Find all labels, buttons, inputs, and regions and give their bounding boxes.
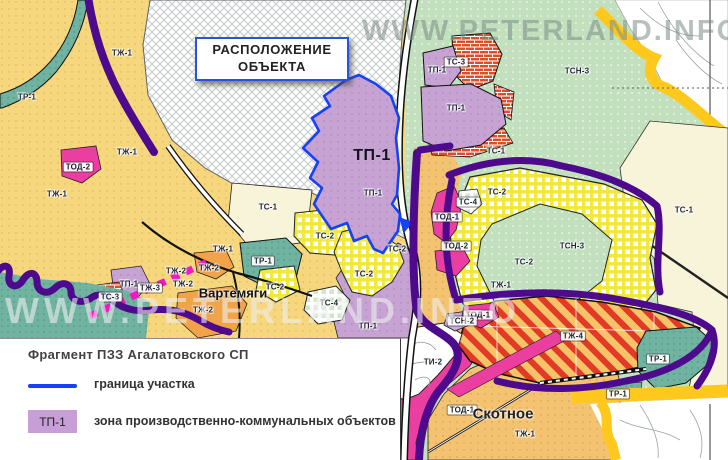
zone-label: ТЖ-1 <box>112 49 132 58</box>
place-label-vartemyagi: Вартемяги <box>199 286 267 301</box>
zone-label: ТЖ-4 <box>561 332 585 341</box>
zone-label: ТР-1 <box>647 355 669 364</box>
zone-label: ТС-3 <box>445 58 468 67</box>
zone-label: ТОД-1 <box>433 213 462 222</box>
zone-label: ТС-3 <box>99 293 122 302</box>
zone-label: ТР-1 <box>607 390 629 399</box>
zone-label: ТЖ-1 <box>515 430 535 439</box>
zone-label: ТС-1 <box>487 147 506 156</box>
zone-label: ТС-4 <box>457 198 480 207</box>
callout-line2: ОБЪЕКТА <box>238 59 306 76</box>
callout-object-location: РАСПОЛОЖЕНИЕ ОБЪЕКТА <box>195 37 349 81</box>
zone-label: ТП-1 <box>447 104 466 113</box>
zone-label: ТП-1 <box>359 322 378 331</box>
zone-label: ТЖ-1 <box>117 148 137 157</box>
zone-label: ТС-1 <box>259 203 278 212</box>
boundary-line-swatch <box>28 384 77 388</box>
zone-label: ТС-2 <box>266 283 285 292</box>
zone-label: ТС-2 <box>515 258 534 267</box>
zone-label: ТС-2 <box>355 270 374 279</box>
zone-label: ТЖ-1 <box>491 281 511 290</box>
zone-label: ТП-1 <box>364 189 383 198</box>
zone-label: ТР-1 <box>252 257 274 266</box>
site-label: ТП-1 <box>353 147 391 165</box>
boundary-label: граница участка <box>94 377 195 391</box>
zone-label: ТЖ-2 <box>166 267 186 276</box>
zone-label: ТОД-2 <box>442 242 471 251</box>
zone-label: ТЖ-1 <box>47 190 67 199</box>
zone-label: ТС-2 <box>388 245 407 254</box>
zone-label: ТС-4 <box>320 299 339 308</box>
callout-line1: РАСПОЛОЖЕНИЕ <box>212 42 331 59</box>
zone-label: ТС-2 <box>488 188 507 197</box>
zone-label-text: зона производственно-коммунальных объект… <box>94 414 396 428</box>
zone-label: ТП-1 <box>120 280 139 289</box>
legend-title: Фрагмент ПЗЗ Агалатовского СП <box>28 347 249 362</box>
zone-label: ТС-1 <box>675 206 694 215</box>
map-page: ТР-1 ТЖ-1 ТЖ-1 ТОД-2 ТЖ-1 ТС-1 ТЖ-1 ТР-1… <box>0 0 728 460</box>
zone-label: ТП-1 <box>428 66 447 75</box>
zone-swatch: ТП-1 <box>28 410 77 433</box>
zone-label: ТСН-3 <box>565 67 590 76</box>
legend-panel: Фрагмент ПЗЗ Агалатовского СП граница уч… <box>0 338 401 460</box>
place-label-skotnoye: Скотное <box>473 406 534 423</box>
zone-label: ТСН-2 <box>448 317 477 326</box>
zone-label: ТОД-2 <box>64 163 93 172</box>
zone-label: ТЖ-2 <box>193 306 213 315</box>
zone-label: ТЖ-1 <box>213 245 233 254</box>
zone-label: ТЖ-2 <box>173 280 193 289</box>
zone-label: ТС-2 <box>316 232 335 241</box>
zone-label: ТИ-2 <box>424 358 443 367</box>
zone-cluster-ne <box>421 33 514 157</box>
zone-label: ТЖ-3 <box>138 284 162 293</box>
zone-label: ТР-1 <box>18 93 36 102</box>
zone-label: ТСН-3 <box>560 242 585 251</box>
zone-label: ТЖ-2 <box>199 264 219 273</box>
